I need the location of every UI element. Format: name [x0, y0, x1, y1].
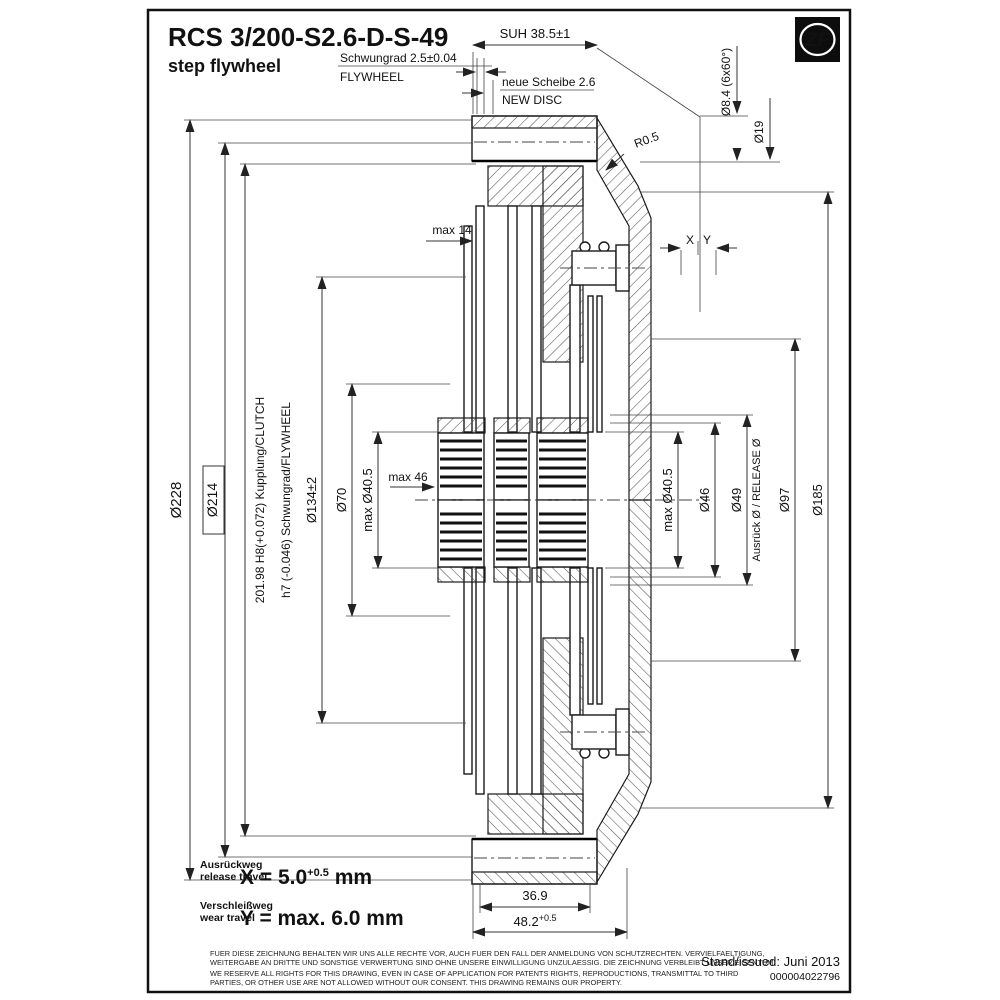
dim-clutch-fit: 201.98 H8(+0.072) Kupplung/CLUTCH	[253, 397, 267, 603]
marker-x: X	[686, 233, 694, 247]
legal-en-line2: PARTIES, OR OTHER USE ARE NOT ALLOWED WI…	[210, 978, 622, 987]
legal-en-line1: WE RESERVE ALL RIGHTS FOR THIS DRAWING, …	[210, 969, 738, 978]
dim-max46: max 46	[388, 470, 428, 484]
dim-d185: Ø185	[810, 484, 825, 516]
drawing-title: RCS 3/200-S2.6-D-S-49	[168, 22, 448, 52]
drawing-subtitle: step flywheel	[168, 56, 281, 76]
dim-w482-tol: +0.5	[539, 913, 557, 923]
dim-w482-value: 48.2	[513, 914, 538, 929]
travel-x-unit: mm	[329, 866, 372, 889]
travel-x-formula: X = 5.0+0.5 mm	[240, 866, 372, 889]
dim-w369: 36.9	[522, 888, 547, 903]
dim-max14: max 14	[432, 223, 472, 237]
dim-d405-left: max Ø40.5	[360, 468, 375, 532]
travel-x-tol: +0.5	[307, 867, 329, 879]
legal-de-line1: FUER DIESE ZEICHNUNG BEHALTEN WIR UNS AL…	[210, 949, 765, 958]
dim-d228: Ø228	[168, 482, 185, 519]
note-new-disc-en: NEW DISC	[502, 93, 562, 107]
dim-counterbore: Ø19	[752, 120, 766, 143]
legal-de-line2: WEITERGABE AN DRITTE UND SONSTIGE VERWER…	[210, 958, 775, 967]
dim-d97: Ø97	[777, 488, 792, 513]
zf-logo: ZF	[795, 17, 840, 62]
dim-d214: Ø214	[204, 483, 220, 517]
dim-release-label: Ausrück Ø / RELEASE Ø	[751, 438, 763, 561]
technical-drawing: ZF RCS 3/200-S2.6-D-S-49 step flywheel	[0, 0, 1000, 1000]
issue-date: Stand/issued: Juni 2013	[701, 954, 840, 969]
dim-bolt-hole: Ø8.4 (6x60°)	[719, 48, 733, 116]
dim-suh: SUH 38.5±1	[500, 26, 571, 41]
marker-y: Y	[703, 233, 711, 247]
note-flywheel-de: Schwungrad 2.5±0.04	[340, 51, 457, 65]
dim-d405-right: max Ø40.5	[660, 468, 675, 532]
note-flywheel-en: FLYWHEEL	[340, 70, 404, 84]
dim-d134: Ø134±2	[304, 477, 319, 523]
dim-d46: Ø46	[697, 488, 712, 513]
note-new-disc-de: neue Scheibe 2.6	[502, 75, 596, 89]
issue-number: 000004022796	[770, 971, 840, 983]
dim-d70: Ø70	[334, 488, 349, 513]
zf-logo-text: ZF	[805, 30, 831, 51]
dim-d49: Ø49	[729, 488, 744, 513]
dim-flywheel-fit: h7 (-0.046) Schwungrad/FLYWHEEL	[279, 402, 293, 598]
travel-x-value: X = 5.0	[240, 866, 307, 889]
travel-y-formula: Y = max. 6.0 mm	[240, 907, 404, 930]
damper-springs	[438, 433, 588, 500]
